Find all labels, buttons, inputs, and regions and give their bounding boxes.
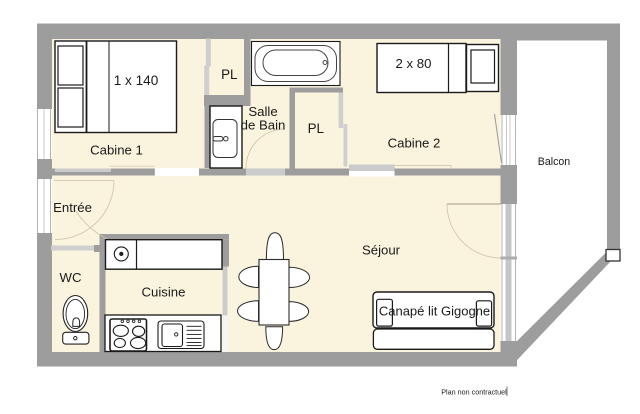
svg-text:Séjour: Séjour <box>362 243 401 258</box>
svg-text:de Bain: de Bain <box>241 118 286 133</box>
svg-text:Canapé lit Gigogne: Canapé lit Gigogne <box>379 304 490 319</box>
svg-text:Balcon: Balcon <box>538 156 570 168</box>
svg-text:Entrée: Entrée <box>53 200 92 215</box>
svg-text:PL: PL <box>308 121 324 136</box>
svg-text:WC: WC <box>60 270 82 285</box>
svg-text:PL: PL <box>221 67 237 82</box>
svg-text:1 x 140: 1 x 140 <box>114 73 159 88</box>
svg-text:Plan non contractuel: Plan non contractuel <box>441 388 507 397</box>
svg-text:Cabine 1: Cabine 1 <box>90 143 143 158</box>
svg-text:Cuisine: Cuisine <box>142 285 186 300</box>
svg-text:Cabine 2: Cabine 2 <box>388 136 441 151</box>
svg-text:2 x 80: 2 x 80 <box>396 56 432 71</box>
